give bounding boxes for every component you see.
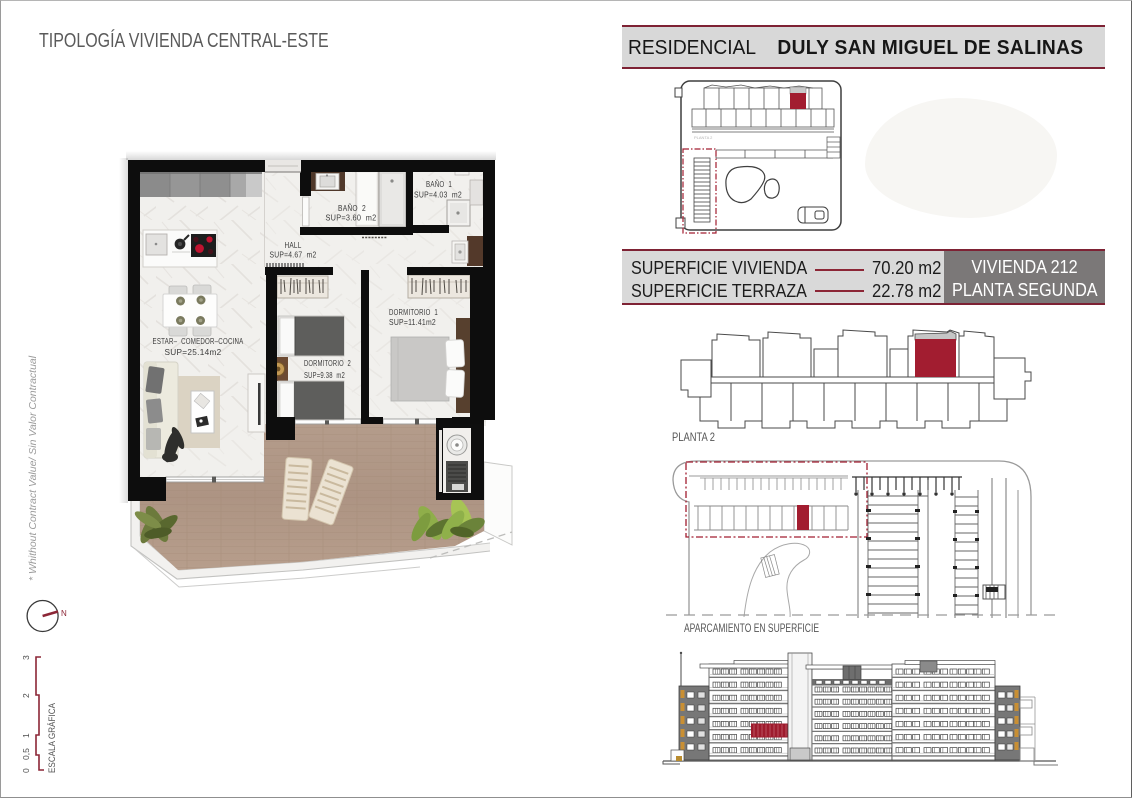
svg-text:SUP=9.38 m2: SUP=9.38 m2 bbox=[304, 370, 345, 380]
svg-text:SUP=25.14m2: SUP=25.14m2 bbox=[165, 347, 222, 357]
svg-text:DORMITORIO 1: DORMITORIO 1 bbox=[389, 307, 438, 317]
svg-text:SUP=4.03 m2: SUP=4.03 m2 bbox=[414, 190, 462, 200]
svg-text:2: 2 bbox=[21, 693, 31, 698]
svg-text:SUP=3.60 m2: SUP=3.60 m2 bbox=[326, 213, 377, 223]
svg-text:0: 0 bbox=[21, 768, 31, 773]
svg-text:BAÑO 1: BAÑO 1 bbox=[426, 179, 452, 189]
svg-text:SUP=11.41m2: SUP=11.41m2 bbox=[389, 317, 436, 327]
svg-text:ESCALA GRÁFICA: ESCALA GRÁFICA bbox=[47, 702, 58, 773]
svg-text:BAÑO 2: BAÑO 2 bbox=[338, 203, 366, 213]
svg-text:PLANTA 2: PLANTA 2 bbox=[672, 430, 715, 444]
svg-text:N: N bbox=[61, 609, 67, 618]
svg-text:DORMITORIO 2: DORMITORIO 2 bbox=[304, 358, 351, 368]
svg-text:ESTAR– COMEDOR–COCINA: ESTAR– COMEDOR–COCINA bbox=[153, 336, 244, 346]
svg-text:APARCAMIENTO EN SUPERFICIE: APARCAMIENTO EN SUPERFICIE bbox=[684, 621, 819, 635]
svg-text:1: 1 bbox=[21, 733, 31, 738]
svg-text:PLANTA 2: PLANTA 2 bbox=[694, 135, 713, 140]
svg-text:3: 3 bbox=[21, 655, 31, 660]
svg-text:SUP=4.67 m2: SUP=4.67 m2 bbox=[270, 250, 317, 260]
svg-text:HALL: HALL bbox=[285, 240, 302, 250]
svg-text:0,5: 0,5 bbox=[21, 748, 31, 760]
